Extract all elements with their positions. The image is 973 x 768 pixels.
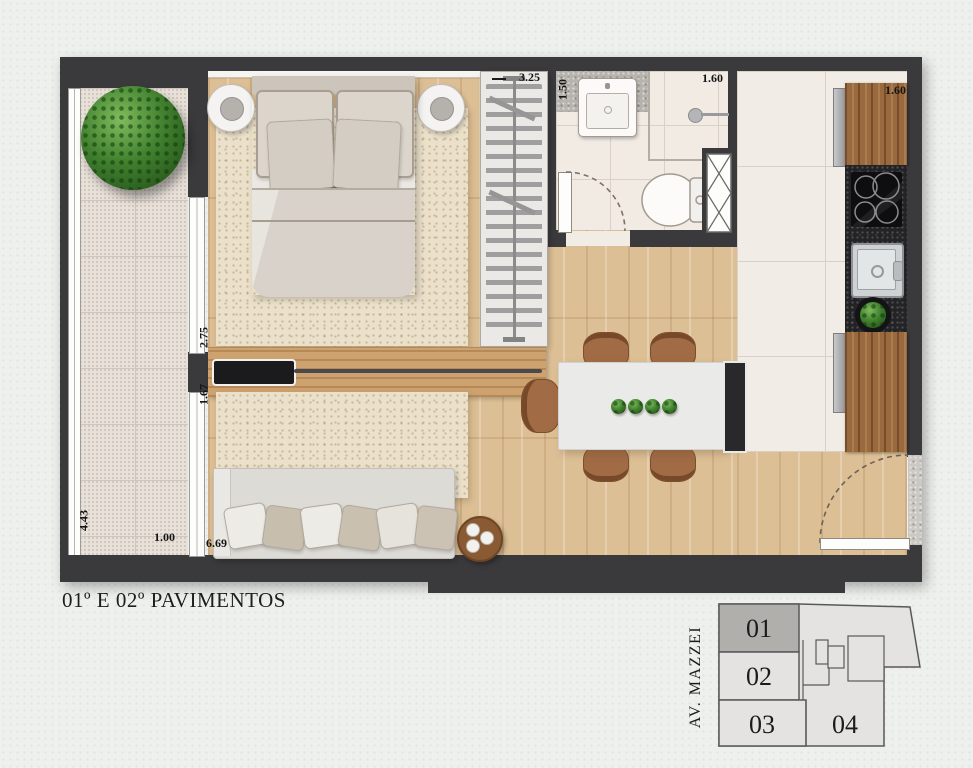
tv xyxy=(214,361,294,384)
keyplan-unit-01-label: 01 xyxy=(746,614,772,643)
kitchen-sink xyxy=(851,243,904,298)
dim-balcony-length: 4.43 xyxy=(77,501,92,541)
keyplan-unit-02-label: 02 xyxy=(746,662,772,691)
bed-pillow xyxy=(266,118,336,193)
dim-wardrobe: 3.25 xyxy=(500,70,540,85)
kitchen-cabinet-bottom xyxy=(845,332,907,452)
wardrobe-rail xyxy=(513,78,516,340)
duct-shaft xyxy=(706,153,732,233)
keyplan: 01 02 03 04 AV. MAZZEI xyxy=(678,596,950,764)
dim-living-length: 6.69 xyxy=(206,536,246,551)
cooktop xyxy=(851,172,902,227)
floor-plan-page: 3.25 1.50 1.60 1.60 2.75 1.67 4.43 1.00 … xyxy=(0,0,973,768)
keyplan-street-label: AV. MAZZEI xyxy=(687,626,704,728)
entry-door-arc xyxy=(812,448,912,548)
bathroom-door-arc xyxy=(556,160,646,242)
nightstand-left xyxy=(207,84,255,132)
wall-right xyxy=(907,57,922,457)
wall-top-balcony xyxy=(60,57,208,88)
nightstand-right xyxy=(417,84,465,132)
bed-pillow xyxy=(332,118,402,193)
wall-balcony-divider-top xyxy=(188,57,208,197)
balcony-plant xyxy=(81,86,185,190)
dim-shower: 1.60 xyxy=(683,71,723,86)
dim-bathroom: 1.50 xyxy=(556,70,571,110)
table-plant xyxy=(662,399,677,414)
keyplan-unit-03-label: 03 xyxy=(749,710,775,739)
wardrobe xyxy=(480,71,548,347)
dim-kitchen: 1.60 xyxy=(866,83,906,98)
bath-drain xyxy=(604,106,612,114)
bath-sink xyxy=(578,78,637,137)
dim-living-window: 1.67 xyxy=(197,375,212,415)
bath-faucet xyxy=(605,83,610,89)
wall-left xyxy=(60,57,68,582)
dining-console xyxy=(723,361,747,453)
table-plant xyxy=(628,399,643,414)
sofa-pillow xyxy=(414,505,459,552)
shower-arm-icon xyxy=(701,113,729,116)
dim-balcony-width: 1.00 xyxy=(135,530,175,545)
table-plant xyxy=(645,399,660,414)
dim-bedroom-window: 2.75 xyxy=(197,318,212,358)
wall-bottom-step xyxy=(428,582,845,593)
balcony-glass-railing xyxy=(68,88,81,557)
dining-chair xyxy=(521,379,561,433)
soundbar xyxy=(294,369,542,373)
plan-title: 01º E 02º PAVIMENTOS xyxy=(62,588,286,613)
keyplan-unit-04-label: 04 xyxy=(832,710,858,739)
table-plant xyxy=(611,399,626,414)
entry-door-leaf xyxy=(820,538,910,550)
wardrobe-rail-cap xyxy=(503,337,525,342)
bowl xyxy=(480,531,494,545)
side-table xyxy=(457,516,503,562)
bed xyxy=(252,76,415,295)
bowl xyxy=(466,523,480,537)
living-window xyxy=(189,392,205,557)
sofa xyxy=(213,468,455,559)
duvet-seam xyxy=(252,220,415,222)
kitchen-plant xyxy=(860,302,886,328)
bowl xyxy=(466,539,480,553)
kitchen-sink-drain xyxy=(871,265,884,278)
bed-duvet xyxy=(252,188,415,297)
kitchen-faucet xyxy=(893,261,903,281)
